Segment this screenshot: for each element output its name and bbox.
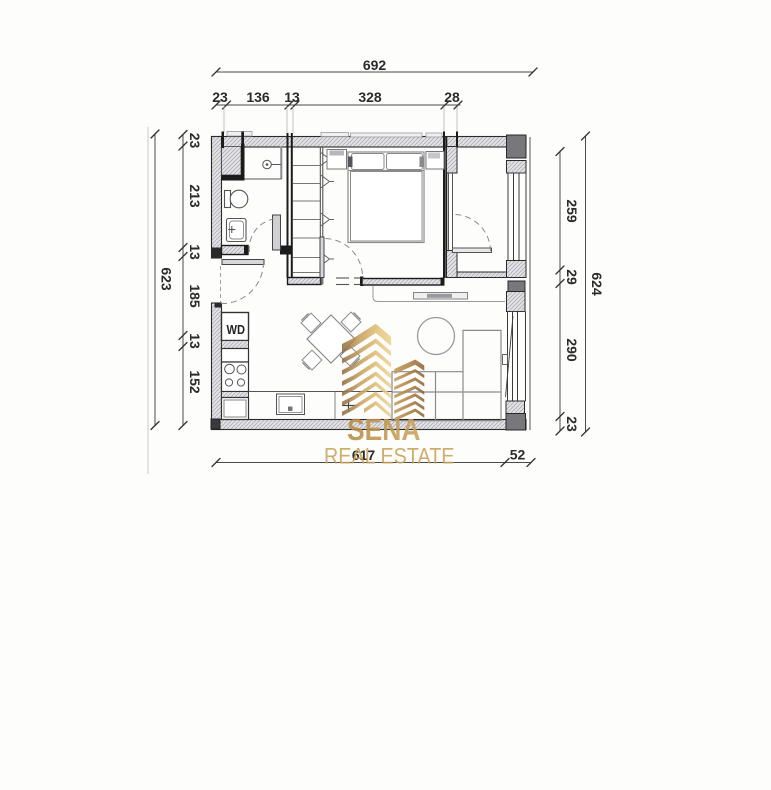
- svg-text:52: 52: [510, 447, 526, 463]
- svg-text:152: 152: [187, 370, 203, 394]
- svg-text:13: 13: [187, 333, 203, 349]
- svg-text:624: 624: [589, 272, 605, 296]
- svg-text:136: 136: [246, 89, 270, 105]
- svg-text:23: 23: [212, 89, 228, 105]
- svg-text:623: 623: [159, 267, 175, 291]
- svg-text:SENA: SENA: [347, 412, 421, 447]
- svg-text:29: 29: [564, 269, 580, 285]
- svg-text:23: 23: [187, 133, 203, 149]
- svg-text:213: 213: [187, 184, 203, 208]
- svg-text:185: 185: [187, 284, 203, 308]
- svg-text:23: 23: [564, 416, 580, 432]
- svg-text:13: 13: [284, 89, 300, 105]
- svg-text:REAL ESTATE: REAL ESTATE: [324, 444, 455, 469]
- svg-text:13: 13: [187, 244, 203, 260]
- svg-text:692: 692: [363, 57, 387, 73]
- svg-text:290: 290: [564, 338, 580, 362]
- svg-text:259: 259: [564, 199, 580, 223]
- svg-text:328: 328: [358, 89, 382, 105]
- svg-text:28: 28: [444, 89, 460, 105]
- svg-text:WD: WD: [227, 322, 246, 337]
